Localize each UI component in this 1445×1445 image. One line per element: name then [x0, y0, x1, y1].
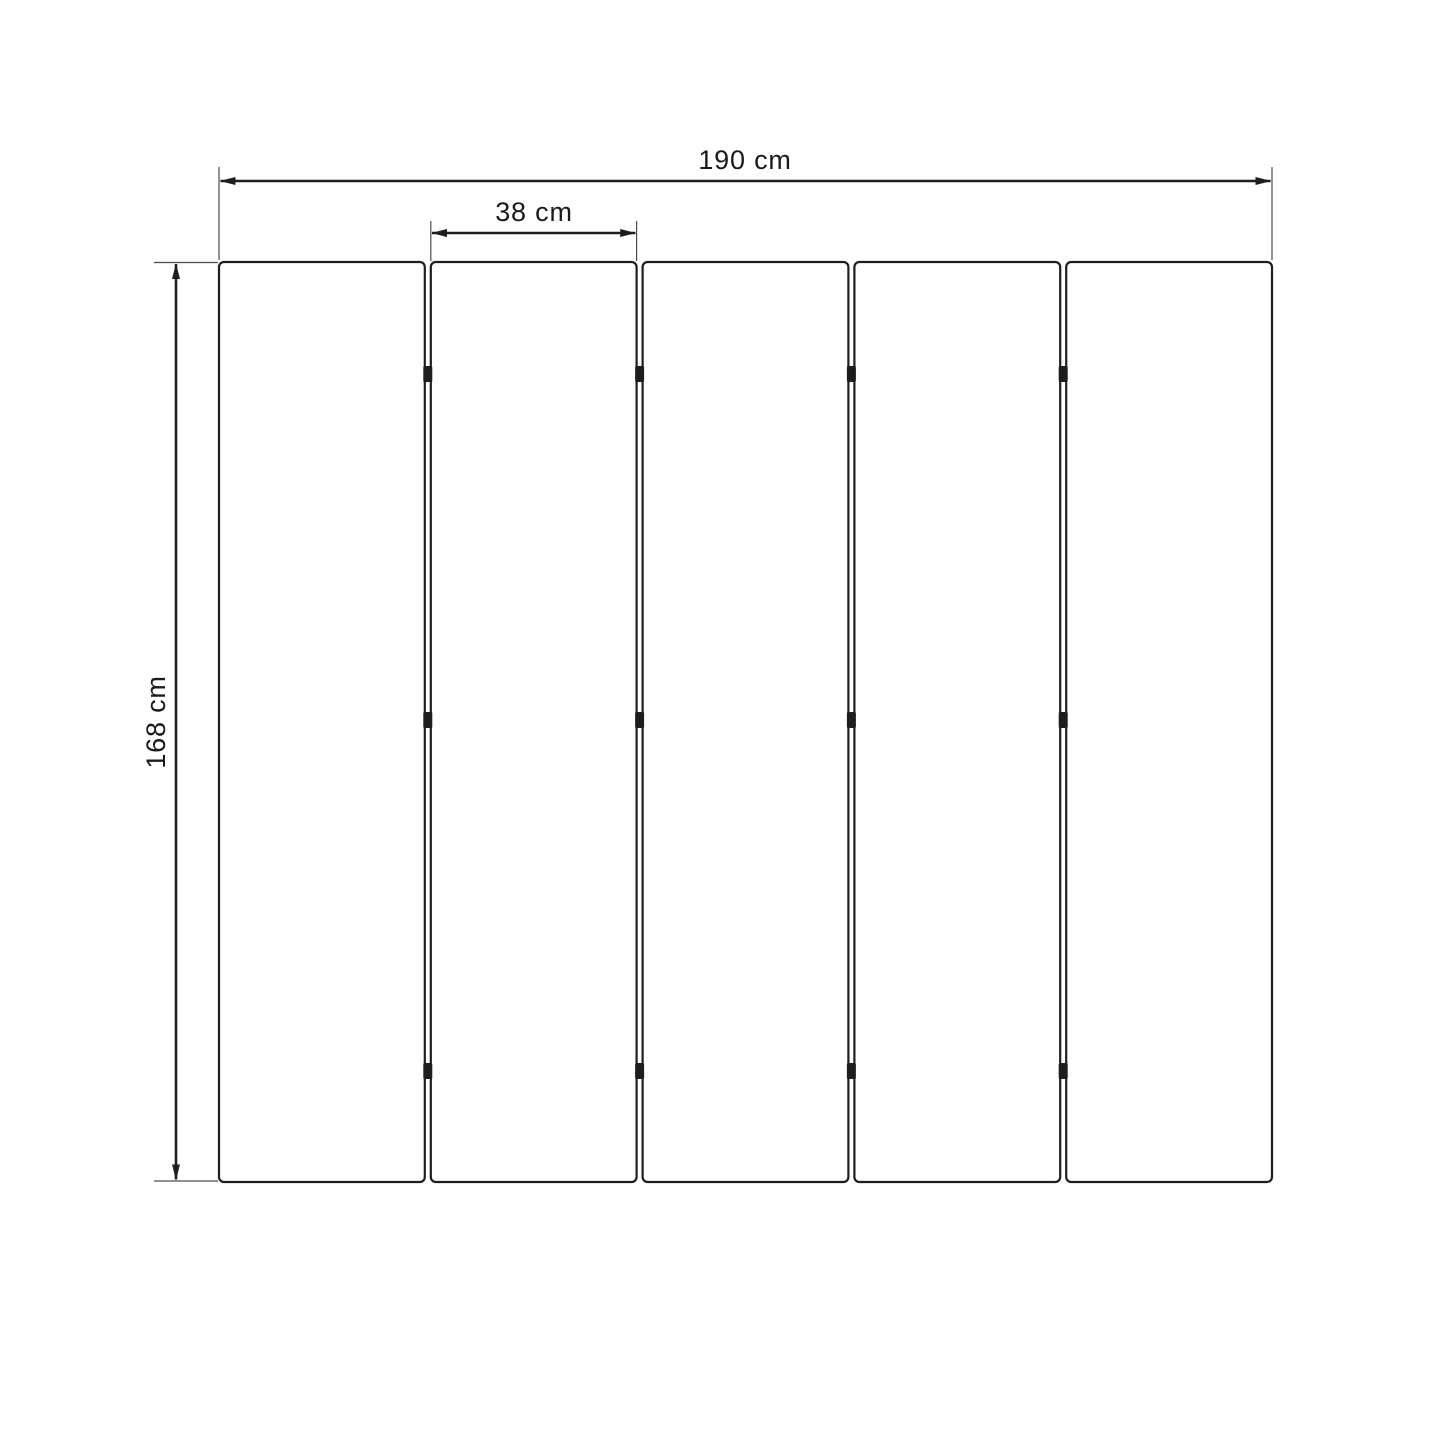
hinge-mark [635, 712, 644, 728]
panel-group [219, 262, 1272, 1182]
panel [643, 262, 849, 1182]
hinge-mark [1059, 712, 1068, 728]
hinge-mark [423, 712, 432, 728]
hinge-mark [635, 366, 644, 382]
dimension-height: 168 cm [141, 263, 218, 1182]
hinge-mark [847, 366, 856, 382]
panel-width-label: 38 cm [495, 197, 573, 227]
panel [854, 262, 1060, 1182]
panel [1066, 262, 1272, 1182]
hinge-mark [1059, 1063, 1068, 1079]
panel [219, 262, 425, 1182]
hinge-mark [635, 1063, 644, 1079]
hinge-mark [847, 1063, 856, 1079]
height-label: 168 cm [141, 675, 171, 768]
dimension-total-width: 190 cm [219, 145, 1272, 260]
panel [431, 262, 637, 1182]
diagram-svg: 190 cm 38 cm 168 cm [0, 0, 1445, 1445]
hinge-mark [423, 1063, 432, 1079]
total-width-label: 190 cm [698, 145, 791, 175]
hinge-mark [1059, 366, 1068, 382]
dimension-panel-width: 38 cm [431, 197, 637, 261]
dimension-diagram: 190 cm 38 cm 168 cm [0, 0, 1445, 1445]
hinge-mark [847, 712, 856, 728]
hinge-mark [423, 366, 432, 382]
